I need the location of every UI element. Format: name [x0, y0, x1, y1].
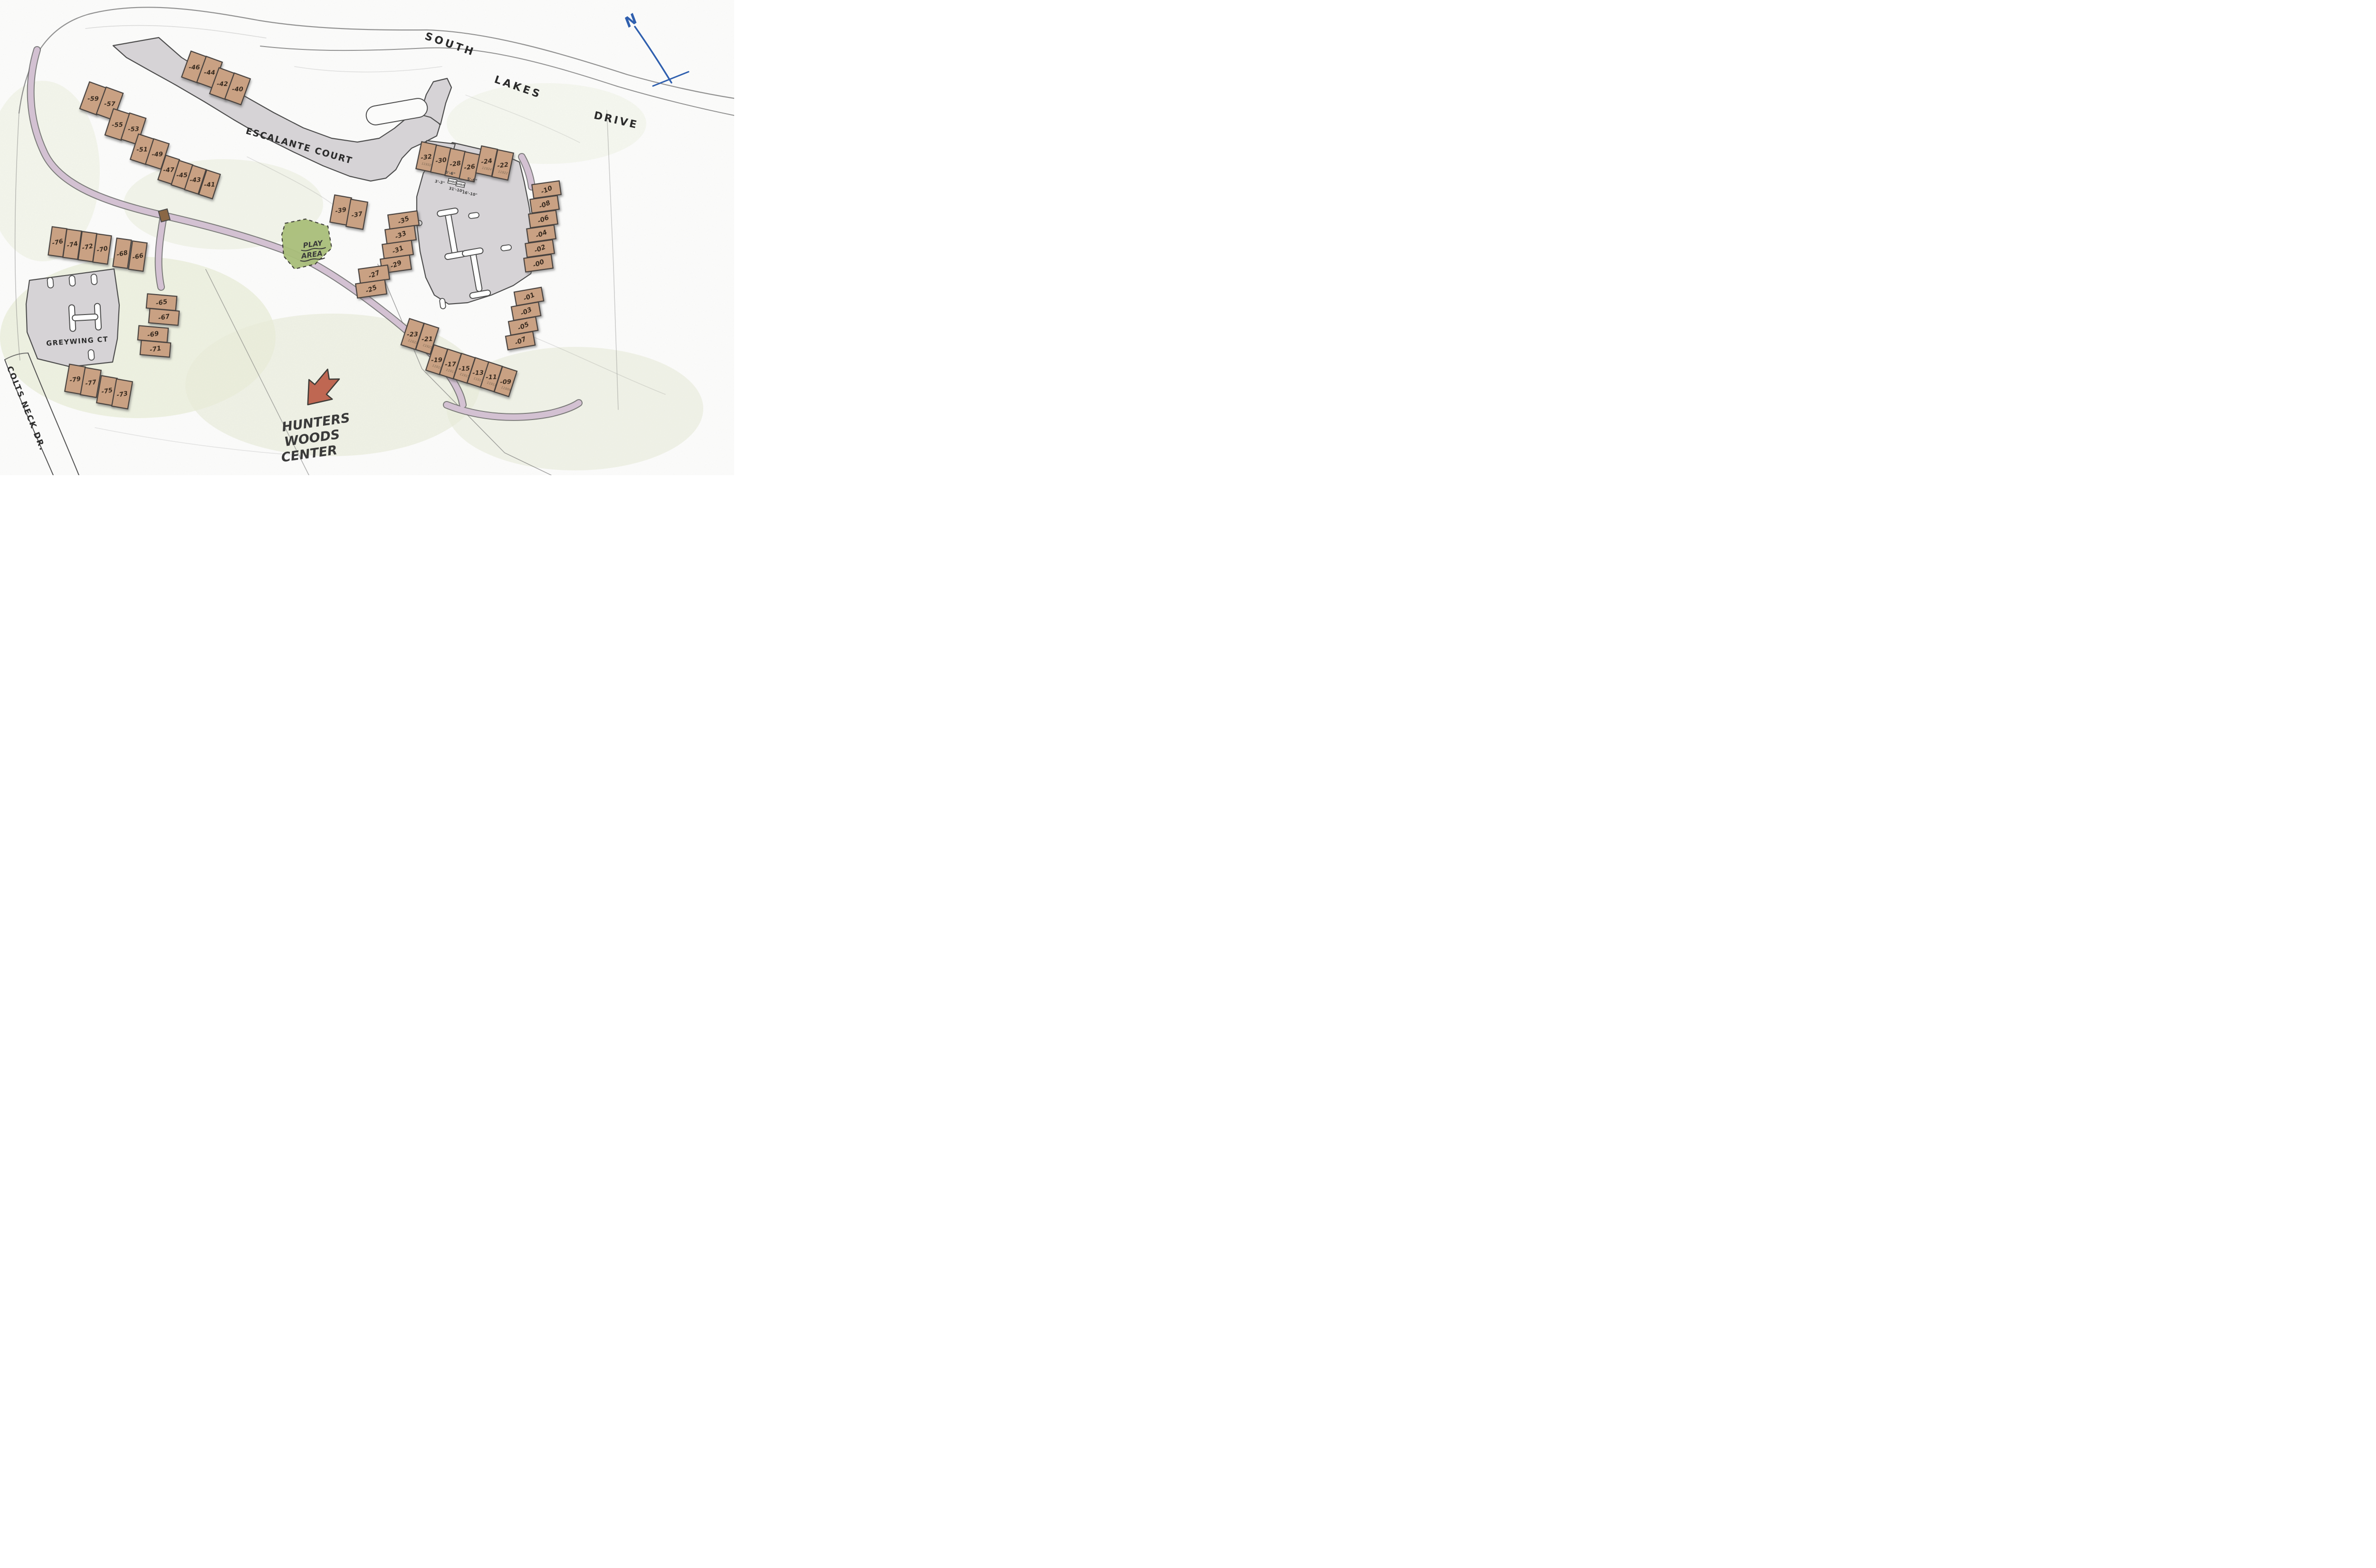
- unit-number-label: -44: [204, 69, 215, 76]
- site-plan-page: -46-44-42-40-59-57-55-53-51-49-47-45-43-…: [0, 0, 734, 475]
- unit-number-label: -45: [176, 172, 188, 180]
- unit-number-label: -42: [217, 81, 228, 88]
- unit-number-label: -59: [87, 96, 99, 103]
- unit-number-label: -41: [204, 182, 215, 189]
- building-unit-67: -67: [149, 308, 179, 325]
- unit-number-label: -55: [112, 122, 123, 129]
- unit-number-label: -23: [407, 331, 418, 339]
- unit-number-label: -57: [104, 101, 115, 108]
- building-unit-69: -69: [138, 325, 168, 342]
- building-unit-65: -65: [146, 294, 177, 310]
- building-unit-71: -71: [140, 340, 171, 357]
- unit-number-label: -43: [190, 177, 201, 184]
- unit-number-label: -46: [189, 64, 200, 71]
- site-plan-map: -46-44-42-40-59-57-55-53-51-49-47-45-43-…: [0, 0, 734, 475]
- parking-lot-greywing: [26, 269, 119, 367]
- unit-number-label: -53: [128, 126, 139, 134]
- unit-number-label: -47: [163, 167, 175, 174]
- unit-number-label: -40: [232, 86, 243, 93]
- unit-number-label: -51: [136, 146, 148, 154]
- unit-number-label: -21: [422, 336, 433, 344]
- unit-number-label: -49: [152, 151, 163, 159]
